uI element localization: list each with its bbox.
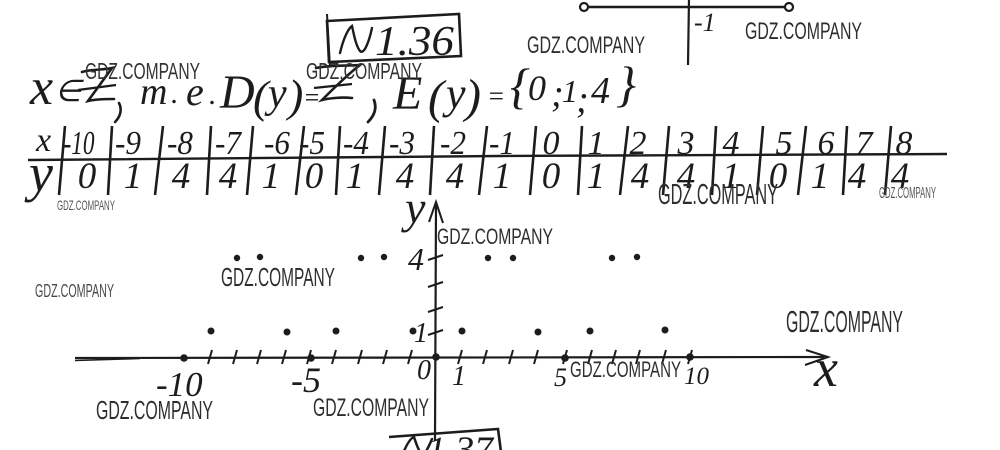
svg-text:1: 1 <box>587 156 606 197</box>
svg-text:0: 0 <box>78 156 97 197</box>
svg-text:1: 1 <box>346 156 365 197</box>
svg-text:4: 4 <box>219 156 238 197</box>
svg-text:.: . <box>209 78 217 111</box>
svg-text:(: ( <box>428 71 447 124</box>
svg-text:GDZ.COMPANY: GDZ.COMPANY <box>570 357 681 382</box>
svg-text:4: 4 <box>848 156 867 197</box>
svg-text:∈: ∈ <box>55 75 84 108</box>
svg-text:1.37: 1.37 <box>427 429 495 450</box>
svg-text:y: y <box>401 182 426 233</box>
svg-text:GDZ.COMPANY: GDZ.COMPANY <box>786 304 903 339</box>
svg-text:4: 4 <box>172 156 191 197</box>
svg-text:1: 1 <box>811 156 830 197</box>
svg-text:GDZ.COMPANY: GDZ.COMPANY <box>745 18 862 45</box>
svg-text:y: y <box>442 69 466 118</box>
svg-text:): ) <box>462 70 481 123</box>
svg-text:{: { <box>510 58 530 114</box>
svg-text:): ) <box>285 70 303 121</box>
svg-text:10: 10 <box>684 363 710 390</box>
svg-text:4: 4 <box>591 70 610 112</box>
svg-text:GDZ.COMPANY: GDZ.COMPANY <box>306 58 422 84</box>
svg-text:0: 0 <box>542 156 561 197</box>
svg-text:0: 0 <box>417 355 431 386</box>
svg-text:GDZ.COMPANY: GDZ.COMPANY <box>879 185 936 202</box>
svg-text:x: x <box>813 338 838 398</box>
svg-text:GDZ.COMPANY: GDZ.COMPANY <box>527 32 645 59</box>
svg-text:GDZ.COMPANY: GDZ.COMPANY <box>658 179 778 211</box>
svg-text:D: D <box>219 66 255 119</box>
svg-text:=: = <box>487 81 505 111</box>
svg-text:0: 0 <box>528 68 546 108</box>
svg-text:;: ; <box>576 79 589 121</box>
svg-text:y: y <box>24 143 53 203</box>
svg-text:GDZ.COMPANY: GDZ.COMPANY <box>57 197 115 213</box>
svg-text:5: 5 <box>554 363 567 392</box>
svg-text:4: 4 <box>631 156 650 197</box>
svg-text:1: 1 <box>124 156 143 197</box>
svg-text:0: 0 <box>305 156 324 197</box>
svg-text:4: 4 <box>408 241 424 277</box>
svg-text:1: 1 <box>493 156 512 197</box>
svg-text:}: } <box>616 56 636 112</box>
svg-text:GDZ.COMPANY: GDZ.COMPANY <box>35 281 114 301</box>
svg-text:-1: -1 <box>694 8 716 37</box>
svg-text:x: x <box>29 59 53 116</box>
svg-text:1: 1 <box>262 156 281 197</box>
svg-text:GDZ.COMPANY: GDZ.COMPANY <box>96 395 213 425</box>
svg-text:4: 4 <box>446 156 465 197</box>
svg-text:1: 1 <box>452 361 466 392</box>
svg-text:GDZ.COMPANY: GDZ.COMPANY <box>85 58 200 84</box>
svg-text:GDZ.COMPANY: GDZ.COMPANY <box>437 224 553 249</box>
svg-text:y: y <box>264 71 287 117</box>
svg-text:1: 1 <box>414 318 428 349</box>
svg-text:GDZ.COMPANY: GDZ.COMPANY <box>313 394 429 422</box>
svg-text:GDZ.COMPANY: GDZ.COMPANY <box>221 262 335 292</box>
